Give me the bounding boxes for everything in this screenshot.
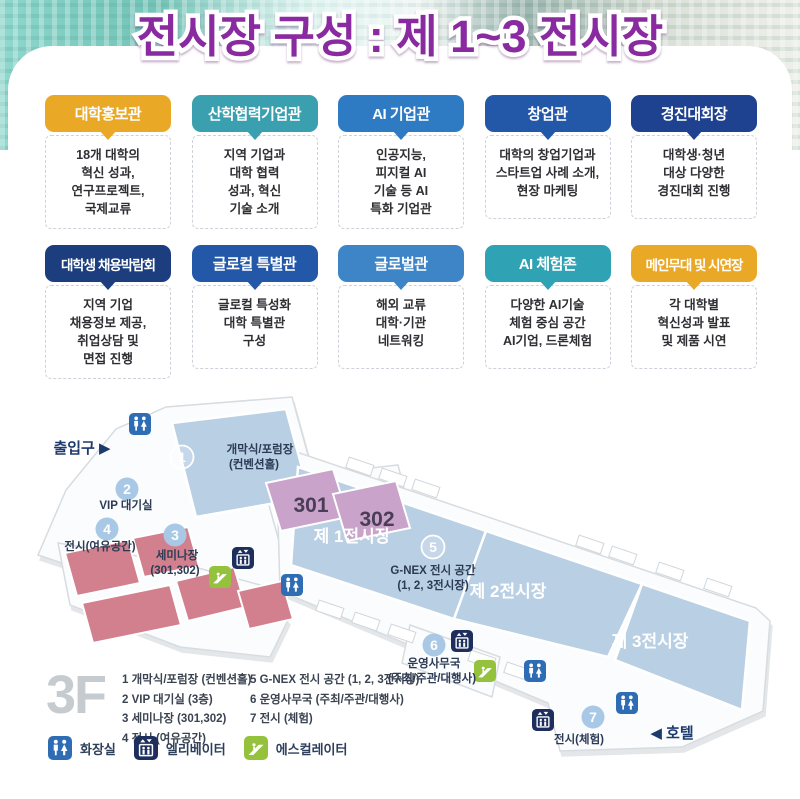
card-title: 대학홍보관: [75, 103, 142, 124]
icon-legend: 화장실 엘리베이터 에스컬레이터: [48, 736, 365, 760]
card-header: 글로컬 특별관: [192, 245, 318, 282]
card-description: 18개 대학의 혁신 성과, 연구프로젝트, 국제교류: [45, 135, 171, 229]
legend-list-col2: 5 G-NEX 전시 공간 (1, 2, 3전시장) 6 운영사무국 (주최/주…: [250, 671, 419, 730]
card-pointer: [99, 130, 117, 140]
restroom-icon: [281, 574, 303, 596]
legend-item: 5 G-NEX 전시 공간 (1, 2, 3전시장): [250, 671, 419, 687]
card-pointer: [246, 130, 264, 140]
pavilion-cards-row-1: 대학홍보관 18개 대학의 혁신 성과, 연구프로젝트, 국제교류 산학협력기업…: [45, 95, 757, 229]
card-description: 글로컬 특성화 대학 특별관 구성: [192, 285, 318, 369]
restroom-icon: [129, 413, 151, 435]
number-marker-3: 3: [164, 524, 187, 547]
gnex-label: G-NEX 전시 공간: [390, 563, 476, 577]
room-301-label: 301: [293, 494, 328, 517]
card-title: 산학협력기업관: [208, 103, 301, 124]
entrance-label: 출입구 ▶: [53, 440, 111, 457]
svg-text:1: 1: [178, 449, 186, 465]
card-pointer: [99, 280, 117, 290]
card-description: 대학의 창업기업과 스타트업 사례 소개, 현장 마케팅: [485, 135, 611, 219]
card-pointer: [392, 130, 410, 140]
vip-room-label: VIP 대기실: [99, 498, 152, 512]
card-description: 인공지능, 피지컬 AI 기술 등 AI 특화 기업관: [338, 135, 464, 229]
elevator-icon: [232, 547, 254, 569]
office-label: 운영사무국: [408, 656, 461, 670]
card-title: 창업관: [528, 103, 568, 124]
legend-icon-label: 에스컬레이터: [276, 739, 348, 758]
legend-item: 7 전시 (체험): [250, 710, 419, 726]
card-header: 대학홍보관: [45, 95, 171, 132]
convention-hall-label: 개막식/포럼장: [227, 442, 294, 456]
svg-text:3: 3: [171, 527, 179, 543]
seminar-label: 세미나장: [156, 548, 199, 562]
legend-icon-label: 엘리베이터: [166, 739, 226, 758]
number-marker-7: 7: [582, 706, 605, 729]
card-industry-cooperation: 산학협력기업관 지역 기업과 대학 협력 성과, 혁신 기술 소개: [192, 95, 318, 229]
floor-label: 3F: [46, 664, 105, 726]
card-startup: 창업관 대학의 창업기업과 스타트업 사례 소개, 현장 마케팅: [485, 95, 611, 229]
card-description: 지역 기업과 대학 협력 성과, 혁신 기술 소개: [192, 135, 318, 229]
card-header: 산학협력기업관: [192, 95, 318, 132]
card-glocal-special: 글로컬 특별관 글로컬 특성화 대학 특별관 구성: [192, 245, 318, 379]
card-description: 각 대학별 혁신성과 발표 및 제품 시연: [631, 285, 757, 369]
card-univ-promotion: 대학홍보관 18개 대학의 혁신 성과, 연구프로젝트, 국제교류: [45, 95, 171, 229]
card-pointer: [685, 280, 703, 290]
number-marker-2: 2: [116, 478, 139, 501]
gnex-sublabel: (1, 2, 3전시장): [397, 578, 469, 592]
convention-hall-sublabel: (컨벤션홀): [229, 457, 279, 471]
card-pointer: [246, 280, 264, 290]
card-title: AI 체험존: [519, 253, 577, 274]
hotel-label: ◀ 호텔: [650, 724, 693, 742]
card-header: 대학생 채용박람회: [45, 245, 171, 282]
card-ai-companies: AI 기업관 인공지능, 피지컬 AI 기술 등 AI 특화 기업관: [338, 95, 464, 229]
card-title: 글로컬 특별관: [213, 253, 296, 274]
card-pointer: [539, 130, 557, 140]
card-title: 글로벌관: [374, 253, 427, 274]
escalator-icon: [209, 566, 231, 588]
escalator-icon: [474, 660, 496, 682]
card-pointer: [539, 280, 557, 290]
hall3-label: 제 3전시장: [612, 632, 689, 651]
card-competition-hall: 경진대회장 대학생·청년 대상 다양한 경진대회 진행: [631, 95, 757, 229]
card-title: AI 기업관: [372, 103, 430, 124]
legend-icon-label: 화장실: [80, 739, 116, 758]
legend-item: 3 세미나장 (301,302): [122, 710, 251, 726]
card-header: 경진대회장: [631, 95, 757, 132]
svg-text:5: 5: [429, 539, 437, 555]
escalator-icon: [244, 736, 268, 760]
card-header: 창업관: [485, 95, 611, 132]
restroom-icon: [616, 692, 638, 714]
card-header: 메인무대 및 시연장: [631, 245, 757, 282]
card-pointer: [685, 130, 703, 140]
card-description: 대학생·청년 대상 다양한 경진대회 진행: [631, 135, 757, 219]
svg-text:2: 2: [123, 481, 131, 497]
card-main-stage: 메인무대 및 시연장 각 대학별 혁신성과 발표 및 제품 시연: [631, 245, 757, 379]
legend-item: 2 VIP 대기실 (3층): [122, 691, 251, 707]
card-header: AI 체험존: [485, 245, 611, 282]
svg-text:7: 7: [589, 709, 597, 725]
hall2-label: 제 2전시장: [470, 582, 547, 601]
card-description: 해외 교류 대학·기관 네트워킹: [338, 285, 464, 369]
card-job-fair: 대학생 채용박람회 지역 기업 채용정보 제공, 취업상담 및 면접 진행: [45, 245, 171, 379]
card-title: 경진대회장: [661, 103, 728, 124]
pavilion-cards-row-2: 대학생 채용박람회 지역 기업 채용정보 제공, 취업상담 및 면접 진행 글로…: [45, 245, 757, 379]
elevator-icon: [134, 736, 158, 760]
card-description: 다양한 AI기술 체험 중심 공간 AI기업, 드론체험: [485, 285, 611, 369]
legend-item: 1 개막식/포럼장 (컨벤션홀): [122, 671, 251, 687]
seminar-sublabel: (301,302): [150, 565, 199, 577]
number-marker-1: 1: [171, 446, 194, 469]
legend-item: 6 운영사무국 (주최/주관/대행사): [250, 691, 419, 707]
poster-root: 전시장 구성 : 제 1~3 전시장 대학홍보관 18개 대학의 혁신 성과, …: [0, 0, 800, 799]
number-marker-6: 6: [423, 634, 446, 657]
svg-text:6: 6: [430, 637, 438, 653]
card-header: AI 기업관: [338, 95, 464, 132]
card-header: 글로벌관: [338, 245, 464, 282]
legend-elevator: 엘리베이터: [134, 736, 226, 760]
legend-restroom: 화장실: [48, 736, 116, 760]
card-description: 지역 기업 채용정보 제공, 취업상담 및 면접 진행: [45, 285, 171, 379]
card-title: 메인무대 및 시연장: [646, 254, 743, 274]
card-title: 대학생 채용박람회: [61, 254, 155, 274]
card-ai-experience: AI 체험존 다양한 AI기술 체험 중심 공간 AI기업, 드론체험: [485, 245, 611, 379]
restroom-icon: [524, 660, 546, 682]
restroom-icon: [48, 736, 72, 760]
number-marker-5: 5: [422, 536, 445, 559]
page-title-graphic: 전시장 구성 : 제 1~3 전시장: [0, 4, 800, 72]
hall1-label: 제 1전시장: [314, 527, 391, 546]
page-title: 전시장 구성 : 제 1~3 전시장: [137, 11, 663, 62]
spare-exhibit-label: 전시(여유공간): [64, 539, 135, 553]
card-pointer: [392, 280, 410, 290]
experience-exhibit-label: 전시(체험): [554, 732, 604, 746]
number-marker-4: 4: [96, 518, 119, 541]
legend-escalator: 에스컬레이터: [244, 736, 348, 760]
svg-text:4: 4: [103, 521, 111, 537]
elevator-icon: [451, 630, 473, 652]
elevator-icon: [532, 709, 554, 731]
card-global: 글로벌관 해외 교류 대학·기관 네트워킹: [338, 245, 464, 379]
